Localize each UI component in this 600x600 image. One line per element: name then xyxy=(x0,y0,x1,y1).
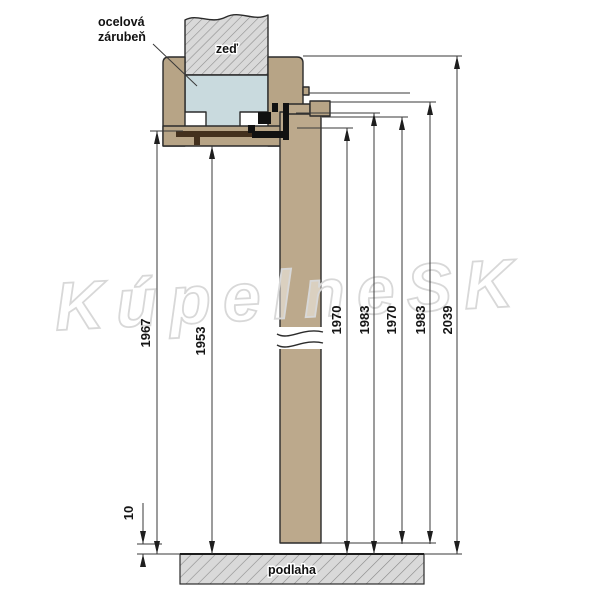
door-frame-section-diagram: KúpelneSK podlaha zeď ocelová zárubeň xyxy=(0,0,600,600)
frame-casing-return xyxy=(310,101,330,116)
callout-line-1: ocelová xyxy=(98,15,145,29)
dimension-1983-floor: 1983 xyxy=(357,113,377,554)
wall-label: zeď xyxy=(216,42,238,56)
svg-text:1970: 1970 xyxy=(329,306,344,335)
svg-text:1967: 1967 xyxy=(138,319,153,348)
svg-text:1953: 1953 xyxy=(193,327,208,356)
dimension-10-gap: 10 xyxy=(121,503,146,567)
frame-groove xyxy=(176,131,253,137)
svg-text:10: 10 xyxy=(121,506,136,520)
dimension-1967: 1967 xyxy=(138,131,160,554)
svg-text:1983: 1983 xyxy=(357,306,372,335)
diagram-canvas: KúpelneSK podlaha zeď ocelová zárubeň xyxy=(0,0,600,600)
leaf-break-symbol xyxy=(275,327,326,349)
svg-text:1983: 1983 xyxy=(413,306,428,335)
svg-text:1970: 1970 xyxy=(384,306,399,335)
dimension-1970-leaf: 1970 xyxy=(384,117,405,544)
steel-frame-fill xyxy=(185,75,268,128)
dimension-1970-floor: 1970 xyxy=(329,128,350,554)
callout-line-2: zárubeň xyxy=(98,30,146,44)
frame-fixing-pin xyxy=(194,137,200,145)
frame-anchor-tab xyxy=(303,87,309,95)
dimension-1953: 1953 xyxy=(193,146,215,554)
floor: podlaha xyxy=(180,554,424,584)
svg-text:2039: 2039 xyxy=(440,306,455,335)
dimension-1983-leaf: 1983 xyxy=(413,102,433,544)
floor-label: podlaha xyxy=(268,563,317,577)
